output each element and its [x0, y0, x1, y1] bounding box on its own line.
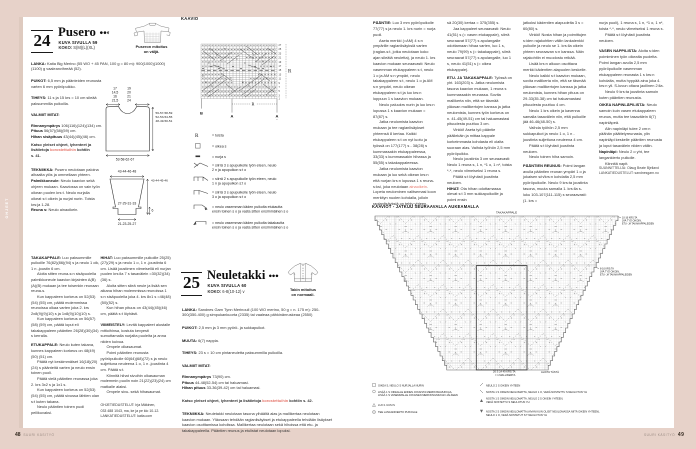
- svg-text:ETU- JA TAKAKAPPALEIDEN: ETU- JA TAKAKAPPALEIDEN: [600, 274, 632, 277]
- svg-text:A: A: [231, 114, 234, 119]
- svg-text:R: R: [288, 70, 292, 75]
- svg-text:24: 24: [127, 99, 131, 103]
- svg-text:TAKAKAPPALE: TAKAKAPPALE: [496, 211, 517, 215]
- svg-text:27: 27: [279, 44, 282, 47]
- svg-text:NEULO 1 O, VEDÄ NOSTETUT S:T N: NEULO 1 O, VEDÄ NOSTETUT S:T NEULOTUN YL…: [486, 413, 548, 417]
- svg-text:OIKEA S, NEULO S NURJALLA NURI: OIKEA S, NEULO S NURJALLA NURIN: [378, 384, 424, 388]
- svg-text:= neulo vasemman käden puikolt: = neulo vasemman käden puikolta takakaut…: [212, 221, 284, 225]
- svg-text:2 n ja apupuikon s:t o: 2 n ja apupuikon s:t o: [212, 168, 246, 172]
- svg-text:R: R: [252, 102, 255, 107]
- svg-text:48-49-50-51: 48-49-50-51: [156, 119, 173, 123]
- svg-text:LISÄÄ 1 S VASEMMALLE JOKAISEN: LISÄÄ 1 S VASEMMALLE JOKAISEN MERKKISILM…: [378, 393, 458, 397]
- svg-text:LUO 1 UUSI S: LUO 1 UUSI S: [378, 403, 395, 407]
- svg-text:1 n ja apupuikon s:t o: 1 n ja apupuikon s:t o: [212, 182, 246, 186]
- svg-text:ensin toinen s o ja vasta sitt: ensin toinen s o ja vasta sitten ensimmä…: [212, 226, 288, 230]
- svg-text:= siirrä 3 s apupuikolle työn: = siirrä 3 s apupuikolle työn eteen, neu…: [212, 191, 276, 195]
- svg-text:= siirrä 3 s apupuikolle työn: = siirrä 3 s apupuikolle työn eteen, neu…: [212, 164, 276, 168]
- svg-text:19: 19: [279, 61, 282, 64]
- svg-text:5: 5: [279, 90, 281, 93]
- svg-text:43-44-45-46: 43-44-45-46: [151, 179, 168, 183]
- svg-text:NOSTA 1 S OIKEIN NEULOMATTA, N: NOSTA 1 S OIKEIN NEULOMATTA, NEULO 1 O, …: [486, 390, 588, 394]
- svg-text:ETU- JA TAKAKAPPALEIDEN: ETU- JA TAKAKAPPALEIDEN: [622, 223, 654, 226]
- svg-text:27-29-31-33: 27-29-31-33: [118, 202, 137, 206]
- svg-text:ensin toinen s o ja vasta sitt: ensin toinen s o ja vasta sitten ensimmä…: [212, 210, 288, 214]
- svg-text:= neulo vasemman käden puikolt: = neulo vasemman käden puikolta etukautt…: [212, 205, 282, 209]
- svg-text:NOSTA 2 S OIKEIN NEULOMATTA (A: NOSTA 2 S OIKEIN NEULOMATTA (AIVAN KUIN …: [486, 410, 600, 414]
- svg-text:R: R: [195, 133, 199, 139]
- svg-text:17: 17: [279, 65, 282, 68]
- svg-text:TEE LANGANKIERTO PUIKOLLE: TEE LANGANKIERTO PUIKOLLE: [378, 410, 418, 414]
- svg-text:NEULO 2 S OIKEIN YHTEEN: NEULO 2 S OIKEIN YHTEEN: [486, 384, 520, 388]
- svg-text:21: 21: [279, 57, 282, 60]
- svg-text:LISÄÄ 1 S OIKEALLE ENNEN JOKAI: LISÄÄ 1 S OIKEALLE ENNEN JOKAISTA MERKKI…: [378, 390, 452, 394]
- svg-text:9: 9: [279, 82, 281, 85]
- svg-text:11: 11: [279, 78, 282, 81]
- svg-text:26 S JA 49 KRS:TA: 26 S JA 49 KRS:TA: [493, 370, 516, 374]
- svg-text:25: 25: [279, 48, 282, 51]
- svg-text:1: 1: [279, 98, 281, 101]
- svg-text:B: B: [200, 111, 203, 116]
- svg-text:43-44-46-48: 43-44-46-48: [118, 170, 137, 174]
- svg-text:23: 23: [279, 52, 282, 55]
- svg-text:7: 7: [279, 86, 281, 89]
- svg-text:= siirrä 2 s apupuikolle työn: = siirrä 2 s apupuikolle työn eteen, neu…: [212, 177, 276, 181]
- svg-text:= 1 MALLIKERTA: = 1 MALLIKERTA: [495, 373, 516, 377]
- svg-text:15: 15: [279, 69, 282, 72]
- svg-text:= nurja s: = nurja s: [212, 155, 226, 159]
- svg-text:= toista: = toista: [212, 134, 224, 138]
- svg-text:21-23-25-27: 21-23-25-27: [118, 222, 137, 226]
- svg-text:VEDÄ NOSTETTU S NEULOTUN YLI: VEDÄ NOSTETTU S NEULOTUN YLI: [486, 400, 530, 404]
- svg-text:ALOITA TÄSTÄ: ALOITA TÄSTÄ: [541, 370, 559, 374]
- svg-text:3 o ja apupuikon s:t o: 3 o ja apupuikon s:t o: [212, 195, 246, 199]
- svg-text:= oikea s: = oikea s: [212, 145, 227, 149]
- svg-text:21,5: 21,5: [112, 99, 119, 103]
- svg-text:NOSTA 1 S OIKEIN NEULOMATTA, N: NOSTA 1 S OIKEIN NEULOMATTA, NEULO 2 S O…: [486, 397, 563, 401]
- svg-text:6: 6: [152, 209, 154, 213]
- svg-text:13: 13: [279, 73, 282, 76]
- svg-text:53-58-62-67: 53-58-62-67: [116, 158, 135, 162]
